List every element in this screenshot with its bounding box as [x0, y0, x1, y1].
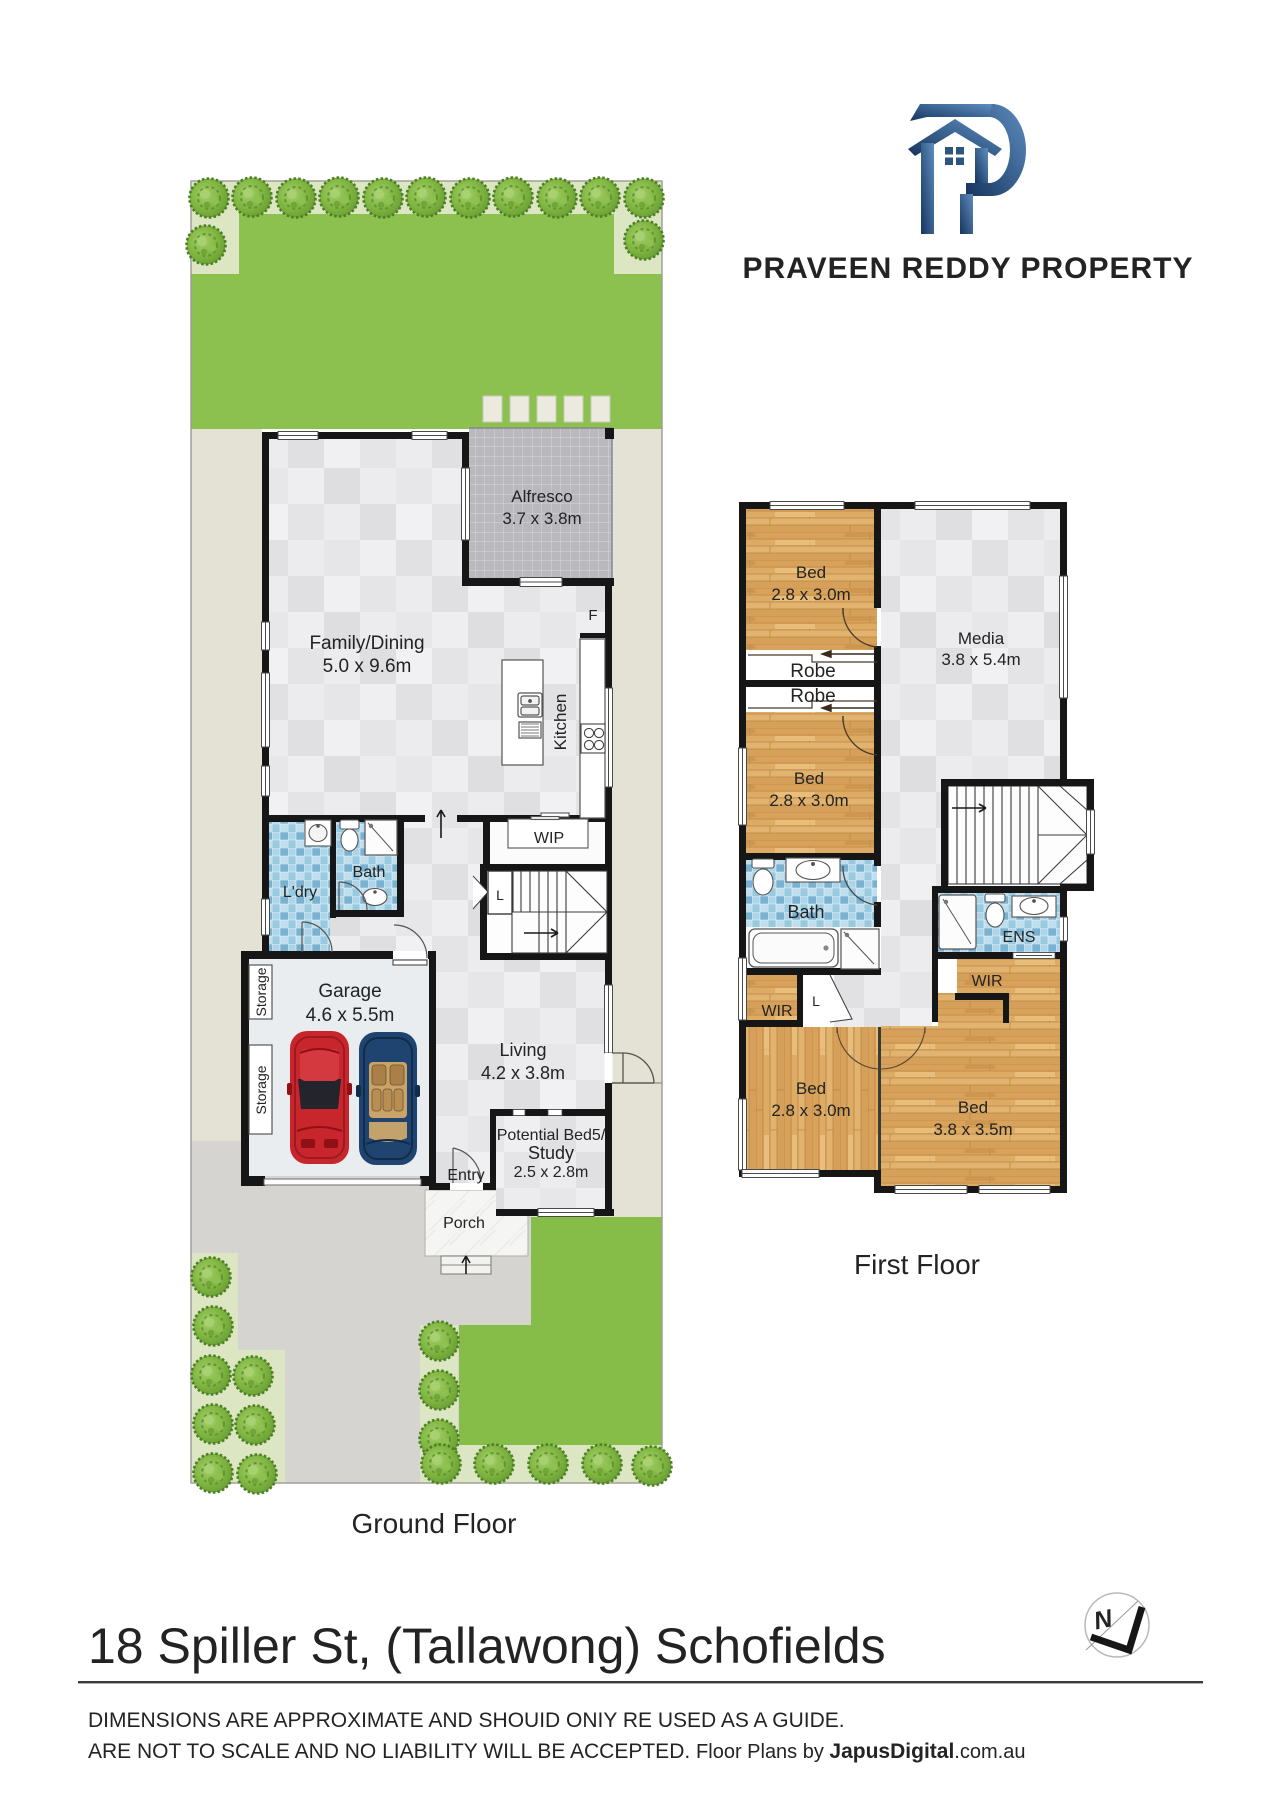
- svg-text:WIR: WIR: [971, 973, 1002, 990]
- svg-text:3.8 x 3.5m: 3.8 x 3.5m: [933, 1120, 1012, 1139]
- svg-text:Bath: Bath: [353, 864, 386, 881]
- svg-text:2.8 x 3.0m: 2.8 x 3.0m: [769, 791, 848, 810]
- svg-text:2.8 x 3.0m: 2.8 x 3.0m: [771, 1101, 850, 1120]
- svg-text:Robe: Robe: [790, 686, 835, 707]
- svg-text:3.7 x 3.8m: 3.7 x 3.8m: [502, 509, 581, 528]
- svg-text:Kitchen: Kitchen: [551, 694, 570, 751]
- svg-text:Bed: Bed: [958, 1098, 988, 1117]
- svg-text:Porch: Porch: [443, 1215, 485, 1232]
- svg-text:5.0 x 9.6m: 5.0 x 9.6m: [323, 656, 412, 677]
- svg-text:ARE NOT TO SCALE AND NO LIABIL: ARE NOT TO SCALE AND NO LIABILITY WILL B…: [88, 1740, 1025, 1763]
- svg-text:F: F: [588, 607, 597, 624]
- svg-text:Potential Bed5/: Potential Bed5/: [497, 1127, 606, 1144]
- svg-text:3.8 x 5.4m: 3.8 x 5.4m: [941, 650, 1020, 669]
- svg-text:L'dry: L'dry: [283, 884, 317, 901]
- svg-text:2.8 x 3.0m: 2.8 x 3.0m: [771, 585, 850, 604]
- svg-text:Bed: Bed: [796, 563, 826, 582]
- svg-text:Garage: Garage: [318, 981, 381, 1002]
- svg-text:4.6 x 5.5m: 4.6 x 5.5m: [306, 1005, 395, 1026]
- svg-text:ENS: ENS: [1003, 929, 1036, 946]
- svg-text:Bath: Bath: [787, 902, 824, 922]
- svg-text:Bed: Bed: [796, 1079, 826, 1098]
- svg-text:Storage: Storage: [253, 967, 269, 1016]
- svg-text:WIP: WIP: [534, 830, 564, 847]
- svg-text:PRAVEEN REDDY PROPERTY: PRAVEEN REDDY PROPERTY: [743, 252, 1194, 285]
- svg-text:L: L: [496, 887, 504, 903]
- svg-text:WIR: WIR: [761, 1003, 792, 1020]
- svg-text:Ground Floor: Ground Floor: [352, 1508, 517, 1539]
- svg-text:Robe: Robe: [790, 661, 835, 682]
- svg-text:Study: Study: [528, 1143, 574, 1163]
- svg-text:Media: Media: [958, 629, 1005, 648]
- svg-text:Entry: Entry: [447, 1167, 484, 1184]
- svg-text:4.2 x 3.8m: 4.2 x 3.8m: [481, 1063, 565, 1083]
- svg-text:Bed: Bed: [794, 769, 824, 788]
- svg-text:First Floor: First Floor: [854, 1249, 980, 1280]
- svg-text:L: L: [812, 993, 820, 1009]
- svg-text:Living: Living: [499, 1040, 546, 1060]
- svg-text:2.5 x 2.8m: 2.5 x 2.8m: [514, 1164, 589, 1181]
- svg-text:Family/Dining: Family/Dining: [309, 633, 424, 654]
- svg-text:DIMENSIONS ARE APPROXIMATE AND: DIMENSIONS ARE APPROXIMATE AND SHOUID ON…: [88, 1709, 845, 1732]
- svg-text:Storage: Storage: [253, 1065, 269, 1114]
- svg-text:Alfresco: Alfresco: [511, 487, 572, 506]
- svg-text:18 Spiller St, (Tallawong) Sch: 18 Spiller St, (Tallawong) Schofields: [88, 1618, 886, 1674]
